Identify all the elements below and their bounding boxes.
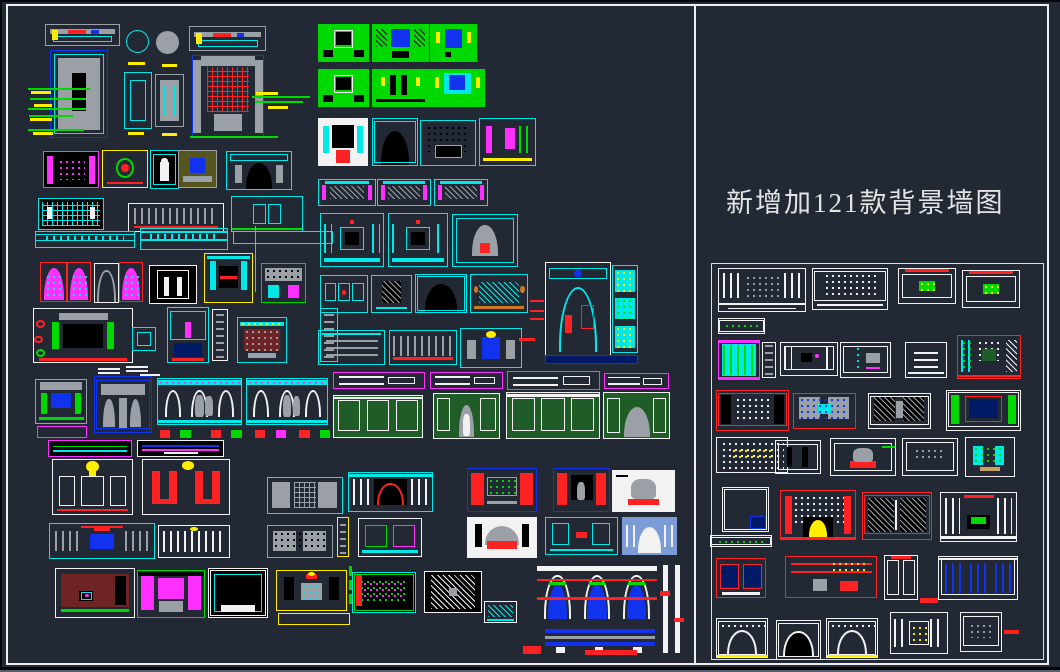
drawing-detail xyxy=(138,572,204,576)
cad-drawing[interactable] xyxy=(40,262,67,302)
cad-drawing[interactable] xyxy=(333,395,423,438)
drawing-detail xyxy=(519,126,530,154)
cad-drawing[interactable] xyxy=(358,518,422,557)
drawing-detail xyxy=(784,273,801,298)
cad-drawing[interactable] xyxy=(962,270,1020,308)
cad-drawing[interactable] xyxy=(957,335,1021,379)
cad-drawing[interactable] xyxy=(603,392,670,439)
drawing-detail xyxy=(423,185,427,200)
drawing-detail xyxy=(40,382,82,390)
cad-drawing[interactable] xyxy=(261,263,306,303)
drawing-detail xyxy=(220,276,237,280)
drawing-detail xyxy=(350,220,355,224)
drawing-detail xyxy=(376,29,387,47)
dimension-line xyxy=(98,372,120,374)
cad-drawing[interactable] xyxy=(716,558,766,598)
drawing-detail xyxy=(549,582,566,586)
cad-drawing[interactable] xyxy=(785,556,877,598)
drawing-detail xyxy=(41,393,47,415)
cad-drawing[interactable] xyxy=(204,253,253,303)
drawing-detail xyxy=(545,629,655,633)
dimension-line xyxy=(530,300,544,302)
drawing-detail xyxy=(53,36,111,42)
drawing-detail xyxy=(438,185,442,200)
drawing-detail xyxy=(318,482,337,508)
cad-drawing[interactable] xyxy=(150,150,179,189)
cad-drawing[interactable] xyxy=(452,214,518,267)
drawing-detail xyxy=(941,536,1016,538)
drawing-detail xyxy=(870,396,929,425)
drawing-detail xyxy=(211,430,221,437)
cad-drawing[interactable] xyxy=(333,372,425,389)
drawing-detail xyxy=(958,375,1020,378)
drawing-detail xyxy=(537,597,657,599)
cad-drawing[interactable] xyxy=(318,24,369,62)
dimension-line xyxy=(190,136,278,138)
drawing-detail xyxy=(182,461,194,470)
drawing-detail xyxy=(198,40,258,47)
cad-drawing[interactable] xyxy=(430,24,477,62)
drawing-detail xyxy=(158,380,241,385)
cad-drawing[interactable] xyxy=(352,572,416,613)
cad-drawing[interactable] xyxy=(470,274,528,313)
drawing-detail xyxy=(487,501,517,504)
drawing-detail xyxy=(722,592,760,594)
cad-drawing[interactable] xyxy=(267,525,333,558)
cad-drawing[interactable] xyxy=(237,317,287,363)
drawing-detail xyxy=(445,29,461,49)
cad-drawing[interactable] xyxy=(102,150,148,188)
drawing-detail xyxy=(158,420,241,423)
dimension-line xyxy=(28,129,84,131)
drawing-detail xyxy=(718,621,766,655)
drawing-detail xyxy=(537,579,657,581)
drawing-detail xyxy=(336,32,351,45)
drawing-detail xyxy=(507,394,599,397)
drawing-detail xyxy=(449,588,458,596)
dimension-line xyxy=(29,115,73,117)
drawing-detail xyxy=(365,525,387,547)
cad-drawing[interactable] xyxy=(43,151,99,188)
cad-drawing[interactable] xyxy=(710,535,772,547)
cad-drawing[interactable] xyxy=(156,31,179,54)
drawing-detail xyxy=(557,473,567,505)
drawing-detail xyxy=(541,398,565,432)
cad-drawing[interactable] xyxy=(246,378,328,425)
cad-drawing[interactable] xyxy=(142,459,230,515)
cad-drawing[interactable] xyxy=(545,517,618,555)
drawing-detail xyxy=(565,315,571,334)
drawing-detail xyxy=(353,479,370,506)
cad-drawing[interactable] xyxy=(49,523,155,559)
cad-drawing[interactable] xyxy=(149,265,197,304)
drawing-detail xyxy=(396,400,418,431)
cad-drawing[interactable] xyxy=(388,213,448,267)
cad-drawing[interactable] xyxy=(67,262,91,302)
drawing-detail xyxy=(785,496,792,534)
drawing-detail xyxy=(401,75,408,95)
drawing-detail xyxy=(480,243,490,253)
cad-drawing[interactable] xyxy=(337,517,349,557)
cad-drawing[interactable] xyxy=(55,568,135,618)
drawing-detail xyxy=(336,150,350,163)
drawing-detail xyxy=(338,400,360,431)
cad-drawing[interactable] xyxy=(938,556,1018,600)
cad-drawing[interactable] xyxy=(965,437,1015,477)
drawing-detail xyxy=(520,473,532,505)
cad-drawing[interactable] xyxy=(160,428,330,440)
cad-drawing[interactable] xyxy=(716,390,789,431)
cad-drawing[interactable] xyxy=(94,376,152,433)
dimension-line xyxy=(162,64,177,67)
cad-drawing[interactable] xyxy=(780,490,856,540)
cad-drawing[interactable] xyxy=(158,525,230,558)
drawing-detail xyxy=(577,482,585,501)
drawing-detail xyxy=(152,499,178,504)
cad-drawing[interactable] xyxy=(124,72,152,129)
drawing-detail xyxy=(235,165,243,184)
drawing-detail xyxy=(232,228,302,231)
cad-drawing[interactable] xyxy=(553,468,610,512)
dimension-line xyxy=(268,106,288,109)
drawing-detail xyxy=(164,277,170,296)
dimension-line xyxy=(252,96,310,98)
cad-drawing[interactable] xyxy=(50,50,108,138)
cad-drawing[interactable] xyxy=(178,150,217,188)
drawing-detail xyxy=(392,258,444,262)
dimension-line xyxy=(349,594,352,604)
cad-drawing[interactable] xyxy=(48,440,132,457)
cad-drawing[interactable] xyxy=(793,393,856,429)
cad-drawing[interactable] xyxy=(278,613,350,625)
drawing-detail xyxy=(71,274,86,297)
cad-drawing[interactable] xyxy=(318,179,376,206)
drawing-detail xyxy=(325,181,370,184)
cad-drawing[interactable] xyxy=(52,459,133,515)
drawing-detail xyxy=(163,531,226,553)
cad-drawing[interactable] xyxy=(545,262,611,358)
cad-drawing[interactable] xyxy=(946,390,1021,431)
drawing-detail xyxy=(382,281,402,303)
cad-drawing[interactable] xyxy=(604,373,669,389)
cad-drawing[interactable] xyxy=(35,379,87,424)
cad-drawing[interactable] xyxy=(276,570,347,611)
cad-drawing[interactable] xyxy=(318,118,368,166)
drawing-detail xyxy=(177,277,183,296)
drawing-detail xyxy=(948,392,1018,427)
drawing-detail xyxy=(616,475,628,477)
cad-drawing[interactable] xyxy=(420,120,476,166)
cad-drawing[interactable] xyxy=(157,378,242,425)
left-margin xyxy=(0,0,2,672)
drawing-detail xyxy=(440,181,482,184)
cad-drawing[interactable] xyxy=(545,355,638,364)
drawing-detail xyxy=(826,346,834,370)
cad-drawing[interactable] xyxy=(320,308,338,362)
drawing-detail xyxy=(241,261,248,290)
cad-drawing[interactable] xyxy=(840,342,891,378)
drawing-detail xyxy=(174,343,202,357)
cad-drawing[interactable] xyxy=(37,426,87,438)
cad-drawing[interactable] xyxy=(94,263,119,303)
cad-drawing[interactable] xyxy=(890,612,948,654)
cad-drawing[interactable] xyxy=(377,179,431,206)
cad-drawing[interactable] xyxy=(35,231,135,248)
cad-drawing[interactable] xyxy=(718,268,806,312)
cad-drawing[interactable] xyxy=(212,309,228,361)
cad-drawing[interactable] xyxy=(812,268,888,310)
drawing-detail xyxy=(265,268,301,281)
cad-drawing[interactable] xyxy=(430,372,503,389)
cad-drawing[interactable] xyxy=(612,265,638,353)
cad-drawing[interactable] xyxy=(126,30,149,53)
cad-drawing[interactable] xyxy=(231,196,303,232)
drawing-detail xyxy=(134,208,219,224)
drawing-detail xyxy=(336,77,351,90)
cad-drawing[interactable] xyxy=(467,468,537,512)
drawing-detail xyxy=(247,420,327,423)
drawing-detail xyxy=(505,128,515,149)
drawing-detail xyxy=(815,354,819,358)
cad-drawing[interactable] xyxy=(776,620,821,660)
drawing-detail xyxy=(552,523,570,545)
drawing-detail xyxy=(362,550,418,552)
cad-drawing[interactable] xyxy=(718,318,765,334)
cad-drawing[interactable] xyxy=(902,438,958,476)
drawing-detail xyxy=(675,565,680,653)
drawing-detail xyxy=(47,207,52,219)
drawing-detail xyxy=(969,623,993,638)
drawing-detail xyxy=(467,32,471,43)
region-divider-line xyxy=(694,4,696,665)
drawing-detail xyxy=(556,647,565,653)
cad-drawing[interactable] xyxy=(140,228,228,250)
dimension-line xyxy=(28,108,86,110)
drawing-detail xyxy=(368,185,372,200)
drawing-detail xyxy=(592,523,610,545)
cad-drawing[interactable] xyxy=(38,198,104,230)
dimension-line xyxy=(34,104,52,107)
drawing-detail xyxy=(324,258,380,262)
drawing-detail xyxy=(324,312,334,359)
drawing-detail xyxy=(653,398,666,433)
cad-drawing[interactable] xyxy=(424,571,482,613)
cad-drawing[interactable] xyxy=(372,118,418,166)
drawing-detail xyxy=(97,270,115,302)
cad-drawing[interactable] xyxy=(318,69,369,107)
drawing-detail xyxy=(781,537,855,539)
drawing-detail xyxy=(299,430,309,437)
drawing-detail xyxy=(160,430,170,437)
drawing-detail xyxy=(53,450,127,452)
cad-drawing[interactable] xyxy=(132,327,156,351)
cad-drawing[interactable] xyxy=(460,328,522,368)
drawing-detail xyxy=(488,605,513,617)
drawing-detail xyxy=(339,376,384,385)
drawing-detail xyxy=(342,290,347,294)
cad-drawing[interactable] xyxy=(119,262,143,302)
drawing-detail xyxy=(376,99,426,102)
cad-drawing[interactable] xyxy=(189,26,266,51)
dimension-line xyxy=(31,91,51,94)
drawing-detail xyxy=(801,353,812,363)
cad-drawing[interactable] xyxy=(716,618,768,658)
dimension-line xyxy=(585,650,637,655)
cad-drawing[interactable] xyxy=(479,118,536,166)
drawing-detail xyxy=(357,126,363,154)
drawing-detail xyxy=(293,396,300,416)
drawing-detail xyxy=(237,33,245,37)
cad-drawing[interactable] xyxy=(905,342,947,378)
cad-drawing[interactable] xyxy=(348,472,433,512)
drawing-detail xyxy=(411,232,425,245)
drawing-detail xyxy=(210,261,217,290)
drawing-detail xyxy=(784,346,792,370)
cad-drawing[interactable] xyxy=(612,470,675,512)
cad-drawing[interactable] xyxy=(372,69,429,107)
drawing-detail xyxy=(164,452,198,454)
cad-drawing[interactable] xyxy=(660,565,685,653)
drawing-detail xyxy=(643,378,662,385)
cad-drawing[interactable] xyxy=(960,612,1002,652)
drawing-detail xyxy=(903,560,916,594)
drawing-detail xyxy=(354,50,364,57)
drawing-detail xyxy=(778,444,818,471)
dimension-line xyxy=(162,133,177,136)
drawing-detail xyxy=(123,274,138,297)
dimension-line xyxy=(140,374,160,376)
drawing-detail xyxy=(54,54,104,135)
drawing-detail xyxy=(180,430,190,437)
drawing-detail xyxy=(283,395,291,418)
cad-drawing[interactable] xyxy=(506,392,600,439)
cad-drawing[interactable] xyxy=(507,371,600,390)
cad-drawing[interactable] xyxy=(940,492,1017,542)
drawing-detail xyxy=(268,204,281,224)
drawing-detail xyxy=(325,283,337,301)
drawing-detail xyxy=(59,476,75,506)
cad-drawing[interactable] xyxy=(718,340,760,380)
drawing-detail xyxy=(724,323,760,329)
cad-drawing[interactable] xyxy=(33,308,133,363)
cad-drawing[interactable] xyxy=(415,274,467,313)
cad-drawing[interactable] xyxy=(167,307,209,363)
drawing-detail xyxy=(437,398,450,431)
drawing-detail xyxy=(52,30,58,40)
drawing-detail xyxy=(374,121,416,163)
drawing-detail xyxy=(545,642,655,646)
cad-drawing[interactable] xyxy=(484,601,517,623)
drawing-detail xyxy=(183,176,213,181)
drawing-detail xyxy=(474,377,495,385)
cad-drawing[interactable] xyxy=(467,517,537,558)
cad-drawing[interactable] xyxy=(868,393,931,429)
cad-drawing[interactable] xyxy=(208,568,268,618)
drawing-detail xyxy=(205,396,212,416)
drawing-detail xyxy=(778,623,819,657)
cad-drawing[interactable] xyxy=(780,342,838,376)
drawing-detail xyxy=(193,60,201,133)
drawing-detail xyxy=(731,448,773,462)
cad-drawing[interactable] xyxy=(233,231,333,244)
cad-drawing[interactable] xyxy=(267,477,343,514)
cad-drawing[interactable] xyxy=(762,342,776,378)
cad-drawing[interactable] xyxy=(372,24,429,62)
cad-drawing[interactable] xyxy=(830,438,896,476)
drawing-detail xyxy=(36,320,45,328)
cad-drawing[interactable] xyxy=(371,275,412,313)
drawing-detail xyxy=(482,337,500,360)
drawing-detail xyxy=(522,524,529,547)
dimension-line xyxy=(920,598,938,603)
cad-drawing[interactable] xyxy=(433,393,500,439)
dimension-line xyxy=(530,318,544,320)
drawing-detail xyxy=(231,430,241,437)
drawing-detail xyxy=(272,482,291,508)
drawing-detail xyxy=(253,204,266,224)
cad-drawing[interactable] xyxy=(884,555,918,600)
drawing-detail xyxy=(268,285,279,298)
drawing-detail xyxy=(115,576,127,605)
drawing-detail xyxy=(581,305,594,329)
cad-drawing[interactable] xyxy=(389,330,457,365)
drawing-detail xyxy=(853,448,872,462)
drawing-detail xyxy=(130,80,147,122)
drawing-detail xyxy=(36,349,45,357)
cad-drawing[interactable] xyxy=(226,151,292,190)
dimension-line xyxy=(28,88,90,90)
drawing-detail xyxy=(354,574,414,611)
drawing-detail xyxy=(381,185,385,200)
drawing-detail xyxy=(172,358,204,361)
cad-drawing[interactable] xyxy=(45,24,120,46)
drawing-detail xyxy=(153,154,176,185)
cad-drawing[interactable] xyxy=(137,440,224,457)
drawing-detail xyxy=(330,186,364,199)
drawing-detail xyxy=(814,271,885,301)
drawing-detail xyxy=(445,186,476,199)
drawing-detail xyxy=(107,322,115,349)
drawing-detail xyxy=(813,579,827,591)
drawing-detail xyxy=(90,534,115,549)
cad-drawing[interactable] xyxy=(775,440,821,474)
cad-drawing[interactable] xyxy=(137,570,205,618)
drawing-detail xyxy=(513,375,559,385)
cad-drawing[interactable] xyxy=(862,492,932,540)
drawing-detail xyxy=(866,353,881,363)
drawing-detail xyxy=(58,159,85,180)
cad-drawing[interactable] xyxy=(537,563,657,625)
cad-drawing[interactable] xyxy=(898,268,956,304)
cad-drawing[interactable] xyxy=(826,618,878,658)
dimension-line xyxy=(1004,630,1019,634)
cad-drawing[interactable] xyxy=(155,74,184,127)
drawing-detail xyxy=(141,576,154,611)
cad-drawing[interactable] xyxy=(434,179,488,206)
drawing-detail xyxy=(537,566,657,571)
cad-drawing[interactable] xyxy=(722,487,769,532)
cad-drawing[interactable] xyxy=(622,517,677,555)
drawing-detail xyxy=(887,560,900,594)
drawing-detail xyxy=(487,619,515,621)
cad-drawing[interactable] xyxy=(429,69,485,107)
drawing-detail xyxy=(487,541,517,549)
dimension-line xyxy=(30,98,86,100)
drawing-detail xyxy=(417,276,465,310)
drawing-detail xyxy=(615,270,634,292)
cad-viewport: 新增加121款背景墙图 xyxy=(0,0,1060,672)
drawing-detail xyxy=(919,281,936,291)
